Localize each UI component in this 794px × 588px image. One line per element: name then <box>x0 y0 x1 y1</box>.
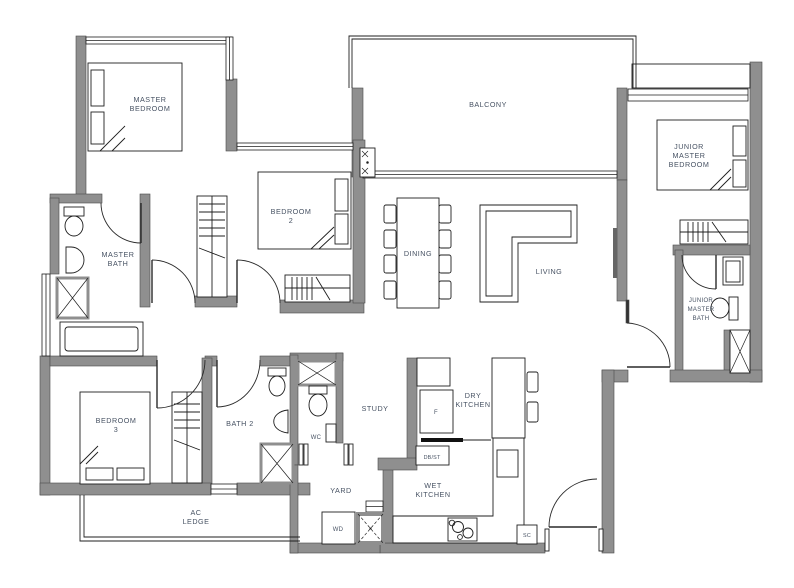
balcony-column-box <box>360 148 375 177</box>
furniture <box>57 63 750 544</box>
yard-hatch-window <box>366 501 383 512</box>
chair <box>384 230 396 248</box>
chair <box>384 255 396 273</box>
label-bedroom-3: BEDROOM <box>96 416 137 425</box>
label-master-bedroom: MASTER <box>134 95 167 104</box>
hob-icon <box>448 518 477 541</box>
wall-segment <box>202 358 212 485</box>
wall-segment <box>260 356 290 366</box>
label-bedroom-3: 3 <box>114 425 119 434</box>
wall-segment <box>76 36 86 198</box>
master-bath-shower <box>57 278 88 318</box>
wc-basin <box>326 424 336 442</box>
bedroom3-wardrobe <box>172 392 202 483</box>
wall-segment <box>407 358 417 465</box>
island-counter <box>492 358 538 438</box>
door-main-entrance <box>549 479 597 527</box>
label-dining: DINING <box>404 249 432 258</box>
wall-segment <box>50 198 59 274</box>
wall-segment <box>378 458 417 470</box>
floor-plan-drawing: MASTER BEDROOM BEDROOM 2 BALCONY JUNIOR … <box>0 0 794 588</box>
bifold-door-wc <box>299 444 308 465</box>
label-ac-ledge: AC <box>191 508 202 517</box>
window <box>42 274 50 356</box>
top-right-ledge <box>632 64 750 88</box>
wall-segment <box>40 483 211 495</box>
pillow <box>335 214 348 244</box>
label-living: LIVING <box>536 267 563 276</box>
label-junior-master-bedroom: BEDROOM <box>669 160 710 169</box>
floor-trap-box <box>358 514 383 543</box>
sliding-door <box>363 171 617 178</box>
bedroom3-bed <box>80 392 150 484</box>
wall-segment <box>40 356 50 495</box>
pillow <box>335 179 348 211</box>
wall-segment <box>195 296 237 307</box>
label-junior-master-bath: MASTER <box>688 307 715 313</box>
wc-toilet <box>309 386 327 416</box>
label-bath-2: BATH 2 <box>226 419 254 428</box>
chair <box>384 205 396 223</box>
chair <box>384 281 396 299</box>
chair <box>439 205 451 223</box>
wall-segment <box>380 543 545 553</box>
label-bedroom-2: 2 <box>289 216 294 225</box>
label-junior-master-bath: JUNIOR <box>689 298 713 304</box>
junior-bath-sink <box>723 257 743 285</box>
window <box>226 37 233 80</box>
master-bath-toilet <box>64 207 84 236</box>
wall-segment <box>750 62 762 382</box>
bath2-toilet <box>268 368 286 396</box>
label-wc: WC <box>311 435 322 441</box>
wall-segment <box>673 245 750 255</box>
stool <box>527 402 538 422</box>
wall-segment <box>724 330 730 373</box>
wall-segment <box>237 483 310 495</box>
junior-bath-toilet <box>711 297 738 320</box>
master-wardrobe <box>197 196 227 297</box>
door-master-bath <box>101 203 141 243</box>
wall-segment <box>617 180 627 301</box>
label-shoe-cabinet: SC <box>523 533 531 539</box>
window <box>211 484 237 494</box>
chair <box>439 230 451 248</box>
wall-segment <box>617 88 627 180</box>
label-master-bath: MASTER <box>102 250 135 259</box>
balcony-parapet <box>349 36 636 88</box>
tv-console <box>613 228 617 278</box>
door-master-bedroom <box>152 260 195 303</box>
label-dry-kitchen: KITCHEN <box>455 400 490 409</box>
label-washer-dryer: WD <box>333 527 344 533</box>
label-db-st: DB/ST <box>424 455 441 461</box>
label-bedroom-2: BEDROOM <box>271 207 312 216</box>
balcony-parapet-inner <box>352 39 633 88</box>
junior-master-wardrobe <box>680 220 748 244</box>
wall-segment <box>675 250 683 380</box>
kitchen-cabinet <box>417 358 450 386</box>
door-junior-bath <box>682 255 716 289</box>
label-junior-master-bath: BATH <box>693 316 710 322</box>
label-fridge: F <box>434 410 438 416</box>
entry-door-frames <box>545 529 603 551</box>
label-study: STUDY <box>362 404 389 413</box>
pillow <box>117 468 144 480</box>
chair <box>439 255 451 273</box>
wc-shower <box>298 361 336 385</box>
pillow <box>91 70 104 106</box>
wall-segment <box>226 79 237 151</box>
floor-plan-page: MASTER BEDROOM BEDROOM 2 BALCONY JUNIOR … <box>0 0 794 588</box>
label-ac-ledge: LEDGE <box>183 517 210 526</box>
label-balcony: BALCONY <box>469 100 507 109</box>
stool <box>527 372 538 392</box>
pillow <box>91 112 104 144</box>
master-bath-sink <box>66 247 84 273</box>
label-wet-kitchen: KITCHEN <box>415 490 450 499</box>
label-wet-kitchen: WET <box>424 481 442 490</box>
wall-segment <box>602 370 614 553</box>
bath2-shower <box>261 444 293 483</box>
bath2-sink <box>274 410 288 433</box>
sofa <box>480 205 577 302</box>
wall-segment <box>50 356 157 366</box>
pillow <box>86 468 113 480</box>
window <box>237 143 353 150</box>
kitchen-counter-bar <box>421 438 463 442</box>
master-bath-tub <box>60 322 143 356</box>
wall-segment <box>626 300 629 323</box>
bifold-door-study <box>344 444 353 465</box>
label-dry-kitchen: DRY <box>465 391 482 400</box>
pillow <box>733 160 746 187</box>
door-junior-suite <box>627 323 670 367</box>
junior-bath-shower <box>730 330 750 373</box>
label-master-bath: BATH <box>108 259 129 268</box>
label-junior-master-bedroom: MASTER <box>673 151 706 160</box>
window <box>86 37 232 44</box>
bedroom2-wardrobe <box>285 275 350 302</box>
window <box>628 89 748 101</box>
door-bedroom2 <box>237 260 280 303</box>
label-yard: YARD <box>330 486 351 495</box>
chair <box>439 281 451 299</box>
door-bath2 <box>217 360 260 407</box>
label-master-bedroom: BEDROOM <box>130 104 171 113</box>
pillow <box>733 126 746 156</box>
kitchen-sink <box>497 450 518 477</box>
label-junior-master-bedroom: JUNIOR <box>674 142 704 151</box>
